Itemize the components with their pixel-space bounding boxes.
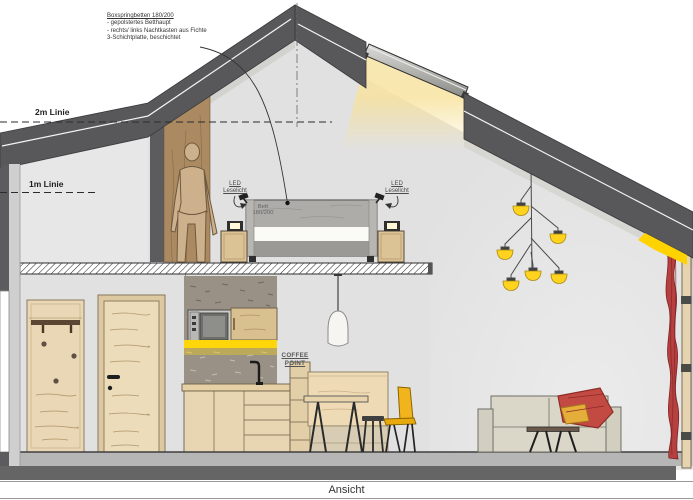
door-keyhole xyxy=(108,386,112,390)
floor-slab xyxy=(16,452,689,466)
bed-annotation-line: 3-Schichtplatte, beschichtet xyxy=(107,35,207,42)
architectural-section-view: Boxspringbetten 180/200 - gepolstertes B… xyxy=(0,0,693,500)
led-label-right: LED Leselicht xyxy=(379,181,415,194)
coffee-point-label: COFFEE POINT xyxy=(276,352,314,367)
left-wall-window xyxy=(0,291,9,452)
entry-door xyxy=(98,295,165,452)
interior-cut-wall xyxy=(150,126,164,262)
wardrobe-panel xyxy=(27,300,84,452)
tall-drawer-unit xyxy=(290,362,310,452)
upper-cabinet xyxy=(231,308,277,340)
label-1m-line: 1m Linie xyxy=(29,179,63,189)
yellow-cushion xyxy=(561,404,589,424)
label-2m-line: 2m Linie xyxy=(35,107,69,117)
foundation xyxy=(0,466,676,480)
kitchen-base xyxy=(182,384,290,452)
bed-annotation-line: - rechts/ links Nachtkasten aus Fichte xyxy=(107,28,207,35)
microwave xyxy=(188,310,231,343)
section-drawing xyxy=(0,0,693,500)
bed-annotation-title: Boxspringbetten 180/200 xyxy=(107,13,207,20)
door-handle xyxy=(107,375,120,379)
bed-underglow xyxy=(247,227,376,241)
drawing-title: Ansicht xyxy=(0,484,693,496)
left-wall xyxy=(0,164,20,466)
bed-size-label: Bett 180/200 xyxy=(247,204,279,217)
bed-annotation: Boxspringbetten 180/200 - gepolstertes B… xyxy=(107,13,207,42)
led-strip-light xyxy=(184,340,277,355)
bed-annotation-line: - gepolstertes Betthaupt xyxy=(107,20,207,27)
coat-rail xyxy=(31,320,80,325)
loft-floor-slab xyxy=(20,263,432,274)
led-label-left: LED Leselicht xyxy=(217,181,253,194)
